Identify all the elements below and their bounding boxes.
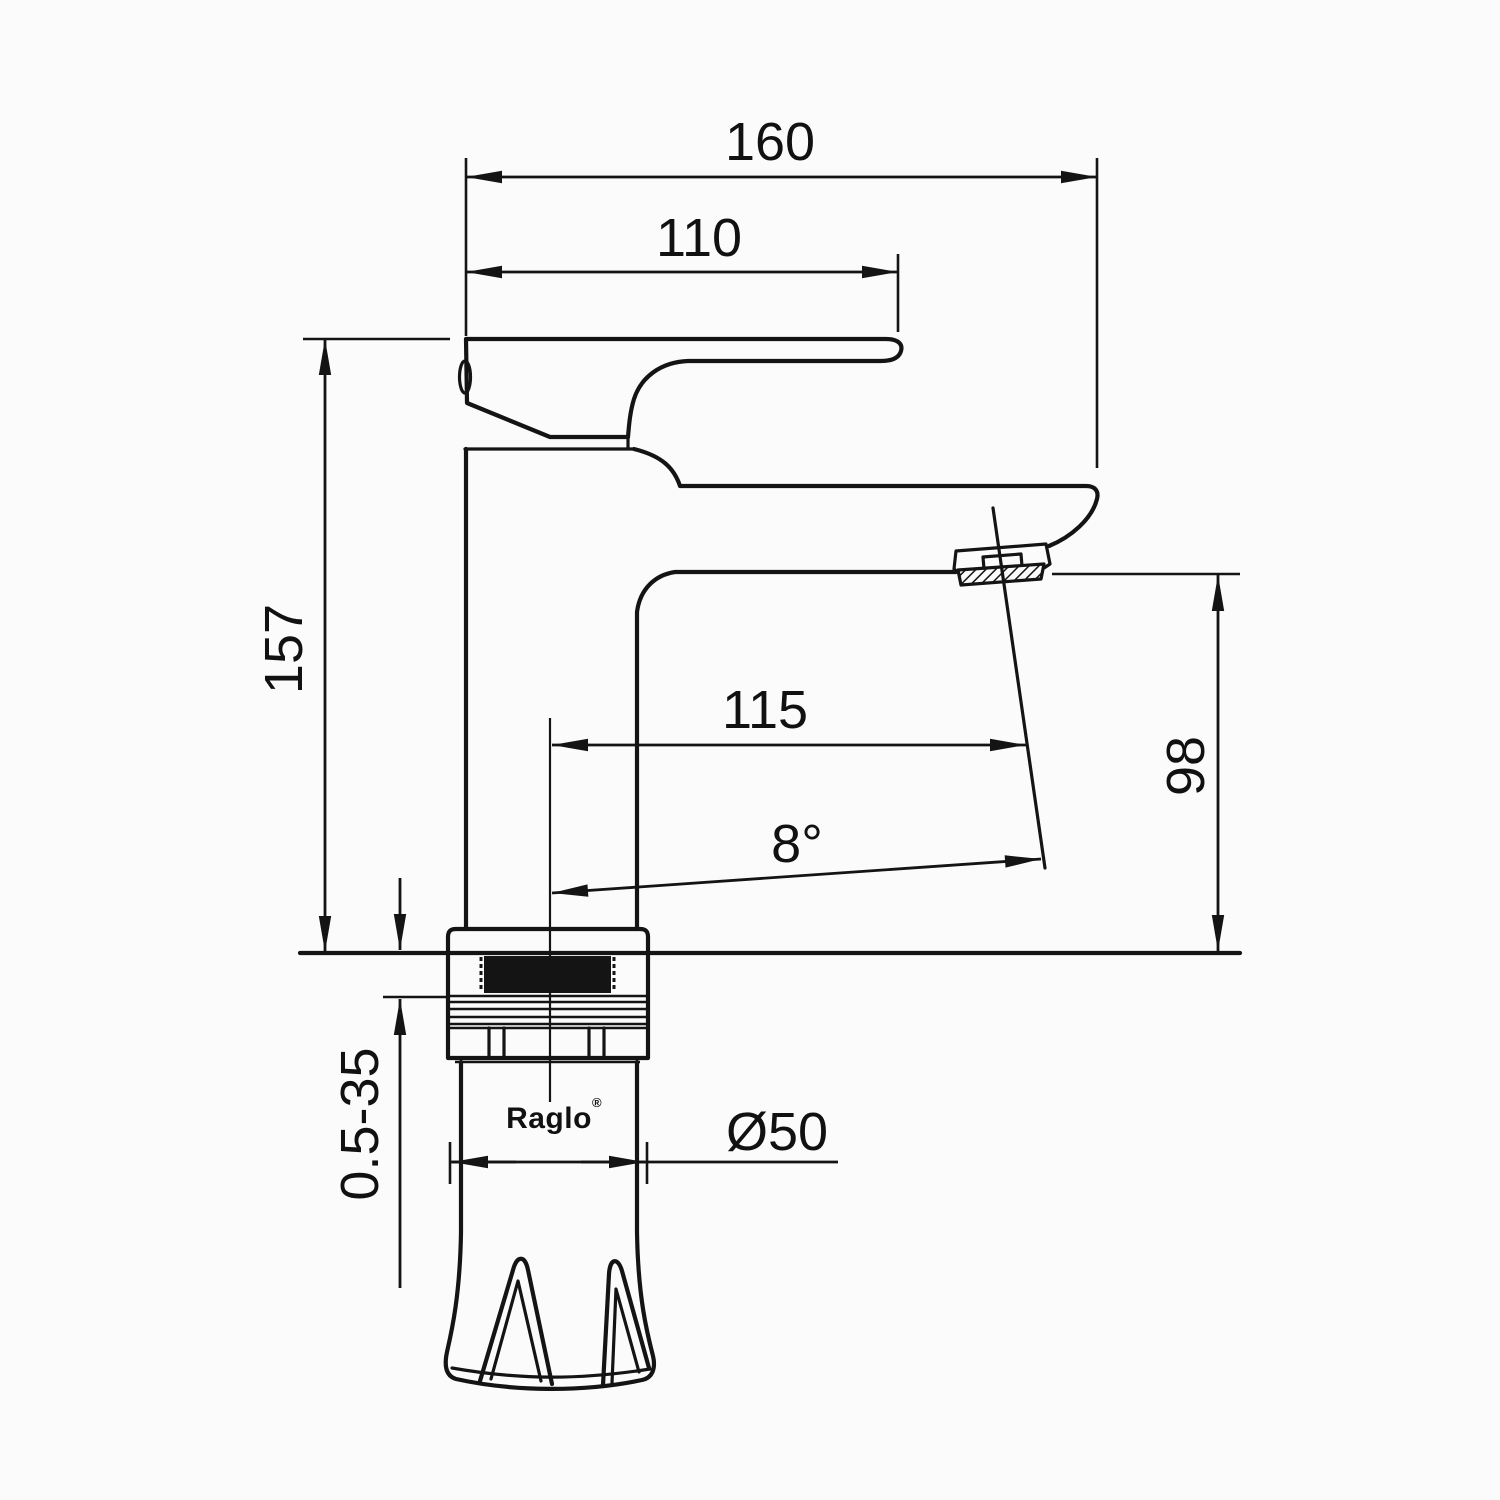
dim-overall-depth: 160 xyxy=(466,112,1097,468)
outlet-angle-reference-line xyxy=(993,508,1045,868)
dim-spout-angle: 8° xyxy=(552,814,1041,893)
dim-label-spout-height: 98 xyxy=(1156,736,1216,796)
dim-label-mount-thickness: 0.5-35 xyxy=(330,1047,390,1200)
dim-label-handle-length: 110 xyxy=(656,208,742,268)
dim-mount-thickness: 0.5-35 xyxy=(330,878,450,1288)
cutout-left-outer xyxy=(480,1259,552,1384)
dim-label-total-height: 157 xyxy=(254,604,314,694)
dim-label-spout-angle: 8° xyxy=(771,814,823,874)
faucet-technical-drawing: Raglo ® 160 110 157 115 98 8° xyxy=(0,0,1500,1500)
dim-handle-length: 110 xyxy=(466,208,898,332)
dim-label-overall-depth: 160 xyxy=(725,112,815,172)
cutout-right-inner xyxy=(612,1289,639,1383)
dim-label-spout-reach: 115 xyxy=(722,680,808,740)
base-flange-block xyxy=(448,929,648,1058)
brand-logo: Raglo xyxy=(506,1102,592,1135)
handle-lever-outline xyxy=(466,339,901,437)
dim-spout-reach: 115 xyxy=(552,680,1026,745)
dim-label-base-diameter: Ø50 xyxy=(726,1102,828,1162)
wing-nut-cutouts xyxy=(480,1259,649,1385)
washer-stack-lines xyxy=(448,996,648,1024)
mounting-threads xyxy=(484,956,611,993)
dim-spout-height: 98 xyxy=(1052,574,1240,951)
technical-drawing-page: Raglo ® 160 110 157 115 98 8° xyxy=(0,0,1500,1500)
registered-trademark-icon: ® xyxy=(592,1095,602,1110)
spout-top-outline xyxy=(634,449,1098,546)
dim-total-height: 157 xyxy=(254,339,450,952)
